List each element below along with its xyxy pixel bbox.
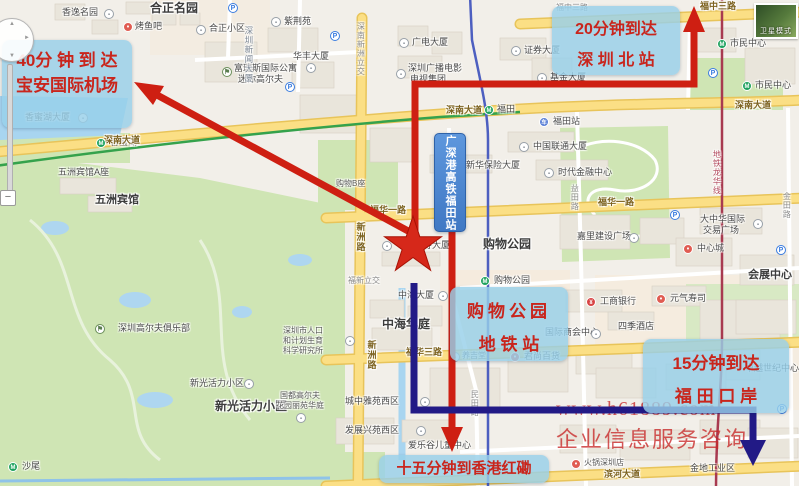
map-label: 新光活力小区 (190, 379, 244, 388)
map-label: 花园丽苑华庭 (276, 402, 324, 410)
callout-north-station: 20分钟到达 深 圳 北 站 (552, 6, 680, 75)
golf-icon: ⚑ (95, 324, 105, 334)
map-label: 深南大道 (446, 106, 482, 115)
map-label: 元气寿司 (670, 294, 706, 303)
zoom-out-button[interactable]: − (0, 190, 16, 206)
map-label: 发展兴苑西区 (345, 426, 399, 435)
parking-icon: P (670, 210, 680, 220)
map-label: 广电大厦 (412, 38, 448, 47)
map-label: 福华一路 (598, 198, 634, 207)
map-label: 中海华庭 (382, 318, 430, 331)
bank-icon: ¥ (586, 297, 596, 307)
map-label: 福中三路 (700, 2, 736, 11)
metro-icon: M (484, 105, 494, 115)
callout-port-line1: 15分钟到达 (643, 349, 789, 374)
map-label: 和计划生育 (283, 337, 323, 345)
map-label: 福新立交 (348, 277, 380, 285)
golf-icon: ⚑ (222, 67, 232, 77)
parking-icon: P (708, 68, 718, 78)
red-icon: • (683, 244, 693, 254)
map-label: 市民中心 (730, 39, 766, 48)
map-label: 新洲路 (366, 340, 375, 370)
map-label: 新洲路 (355, 222, 364, 252)
satellite-toggle-label: 卫星模式 (756, 26, 796, 36)
map-label: 深南大道 (104, 136, 140, 145)
bld-icon: ▪ (544, 168, 554, 178)
map-label: 深圳市人口 (283, 327, 323, 335)
bld-icon: ▪ (396, 69, 406, 79)
bld-icon: ▪ (399, 38, 409, 48)
callout-shop-line1: 购物公园 (450, 297, 568, 322)
map-label: 交易广场 (703, 226, 739, 235)
bld-icon: ▪ (629, 233, 639, 243)
parking-icon: P (228, 3, 238, 13)
callout-port-line2: 福 田 口 岸 (643, 382, 789, 407)
pan-down-icon[interactable]: ▼ (9, 53, 15, 59)
bld-icon: ▪ (591, 329, 601, 339)
pan-right-icon[interactable]: ► (24, 35, 30, 41)
map-label: 会展中心 (748, 270, 792, 282)
map-label: 火锅深圳店 (584, 459, 624, 467)
map-label: 城中雅苑西区 (345, 397, 399, 406)
map-label: 合正小区 (209, 24, 245, 33)
bld-icon: ▪ (104, 9, 114, 19)
map-label: 金田路 (782, 192, 790, 219)
map-label: 嘉里建设广场 (577, 232, 631, 241)
callout-futian-hsr-station: 广深港高铁福田站 (434, 133, 466, 232)
metro-icon: M (742, 81, 752, 91)
callout-airport-line2: 宝安国际机场 (2, 77, 132, 94)
bld-icon: ▪ (753, 219, 763, 229)
bld-icon: ▪ (271, 17, 281, 27)
map-label: 购物公园 (483, 238, 531, 251)
pan-up-icon[interactable]: ▲ (9, 21, 15, 27)
bld-icon: ▪ (244, 379, 254, 389)
callout-north-line2: 深 圳 北 站 (552, 46, 680, 70)
callout-north-line1: 20分钟到达 (552, 15, 680, 39)
map-label: 沙尾 (22, 462, 40, 471)
callout-futian-port: 15分钟到达 福 田 口 岸 (643, 339, 789, 413)
callout-hung-line1: 十五分钟到香港红磡 (379, 455, 549, 483)
bld-icon: ▪ (511, 46, 521, 56)
map-label: 地铁龙华线 (712, 150, 720, 195)
map-label: 民田路 (470, 390, 478, 417)
parking-icon: P (776, 245, 786, 255)
bld-icon: ▪ (382, 241, 392, 251)
map-label: 中海大厦 (398, 291, 434, 300)
map-label: 科学研究所 (283, 347, 323, 355)
zoom-slider[interactable] (7, 64, 13, 192)
map-label: 爱乐谷儿童中心 (408, 441, 471, 450)
red-icon: • (123, 22, 133, 32)
callout-hung-hom: 十五分钟到香港红磡 (379, 455, 549, 483)
satellite-toggle[interactable]: 卫星模式 (754, 3, 798, 39)
map-label: 滨河大道 (604, 470, 640, 479)
map-label: 购物公园 (494, 276, 530, 285)
parking-icon: P (285, 82, 295, 92)
map-label: 购物B座 (336, 180, 365, 188)
map-label: 电视集团 (410, 75, 446, 84)
map-label: 福田站 (553, 117, 580, 126)
map-label: 深南新洲立交 (356, 22, 364, 76)
map-label: 四季酒店 (618, 322, 654, 331)
rail-icon: 车 (539, 117, 549, 127)
metro-icon: M (8, 462, 18, 472)
map-label: 深圳新闻大厦 (244, 26, 253, 83)
map-label: 深南大道 (735, 101, 771, 110)
bld-icon: ▪ (438, 291, 448, 301)
bld-icon: ▪ (519, 142, 529, 152)
bld-icon: ▪ (345, 336, 355, 346)
map-label: 中国人寿大厦 (396, 241, 450, 250)
map-label: 新华保险大厦 (466, 161, 520, 170)
bld-icon: ▪ (537, 73, 547, 83)
map-label: 中国联通大厦 (533, 142, 587, 151)
metro-icon: M (717, 39, 727, 49)
map-label: 中心城 (697, 244, 724, 253)
map-label: 工商银行 (600, 297, 636, 306)
map-label: 紫荆苑 (284, 17, 311, 26)
map-label: 福田 (497, 105, 515, 114)
map-label: 深圳广播电影 (408, 64, 462, 73)
bld-icon: ▪ (420, 397, 430, 407)
parking-icon: P (330, 31, 340, 41)
bld-icon: ▪ (306, 63, 316, 73)
metro-icon: M (96, 138, 106, 148)
map-label: 益田路 (570, 184, 578, 211)
map-label: 华丰大厦 (293, 52, 329, 61)
map-label: 五洲宾馆 (95, 195, 139, 207)
map-label: 金地工业区 (690, 464, 735, 473)
callout-shop-line2: 地 铁 站 (450, 330, 568, 355)
bld-icon: ▪ (196, 25, 206, 35)
callout-shopping-park-station: 购物公园 地 铁 站 (450, 287, 568, 361)
map-label: 福华一路 (370, 206, 406, 215)
bld-icon: ▪ (296, 413, 306, 423)
map-label: 福华三路 (406, 348, 442, 357)
map-canvas[interactable]: 合正名园香逸名园烤鱼吧合正小区紫荆苑华丰大厦富瑞斯国际公寓迷你高尔夫广电大厦深圳… (0, 0, 799, 486)
map-label: 合正名园 (150, 2, 198, 15)
map-label: 五洲宾馆A座 (58, 168, 109, 177)
red-icon: • (656, 294, 666, 304)
map-label: 市民中心 (755, 81, 791, 90)
map-label: 时代金融中心 (558, 168, 612, 177)
map-label: 香逸名园 (62, 8, 98, 17)
map-label: 深圳高尔夫俱乐部 (118, 324, 190, 333)
map-label: 国都高尔夫 (280, 392, 320, 400)
map-label: 大中华国际 (700, 215, 745, 224)
metro-icon: M (480, 276, 490, 286)
bld-icon: ▪ (416, 426, 426, 436)
map-label: 烤鱼吧 (135, 22, 162, 31)
red-icon: • (571, 459, 581, 469)
